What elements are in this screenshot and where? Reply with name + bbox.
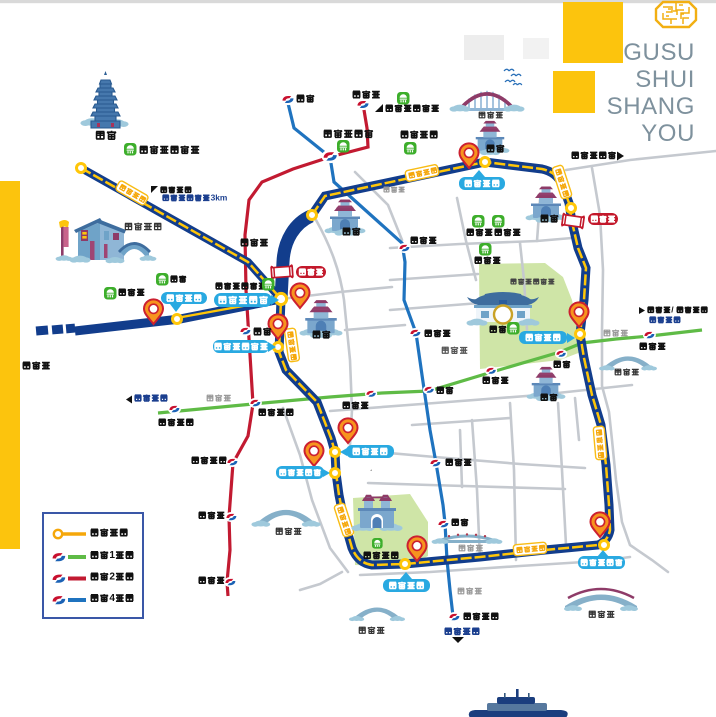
svg-text:GUSU: GUSU bbox=[623, 39, 695, 66]
svg-text:YOU: YOU bbox=[641, 120, 695, 147]
svg-text:SHANG: SHANG bbox=[607, 93, 695, 120]
svg-text:3km: 3km bbox=[211, 192, 228, 202]
svg-text:2: 2 bbox=[109, 572, 115, 583]
svg-text:SHUI: SHUI bbox=[635, 66, 695, 93]
svg-text:4: 4 bbox=[109, 593, 115, 604]
svg-text:1: 1 bbox=[109, 550, 115, 561]
